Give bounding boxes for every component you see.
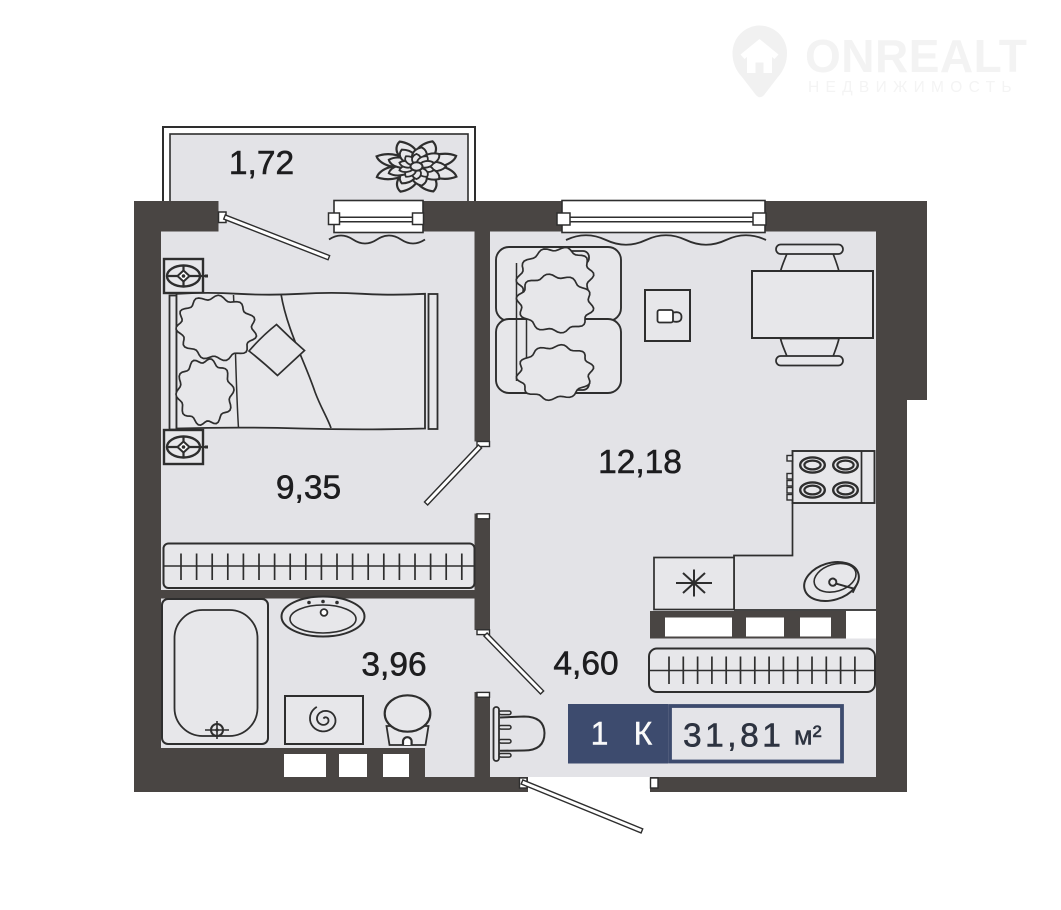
svg-text:9,35: 9,35 <box>276 470 341 507</box>
svg-text:31,81: 31,81 <box>683 718 784 755</box>
svg-text:3,96: 3,96 <box>361 647 426 684</box>
svg-text:К: К <box>634 716 653 752</box>
svg-text:1: 1 <box>591 716 609 752</box>
svg-text:1,72: 1,72 <box>229 145 294 182</box>
svg-text:м²: м² <box>794 721 822 751</box>
svg-text:ONREALT: ONREALT <box>805 30 1027 82</box>
svg-text:НЕДВИЖИМОСТЬ: НЕДВИЖИМОСТЬ <box>808 79 1018 96</box>
svg-text:4,60: 4,60 <box>553 646 618 683</box>
svg-text:12,18: 12,18 <box>598 444 682 481</box>
